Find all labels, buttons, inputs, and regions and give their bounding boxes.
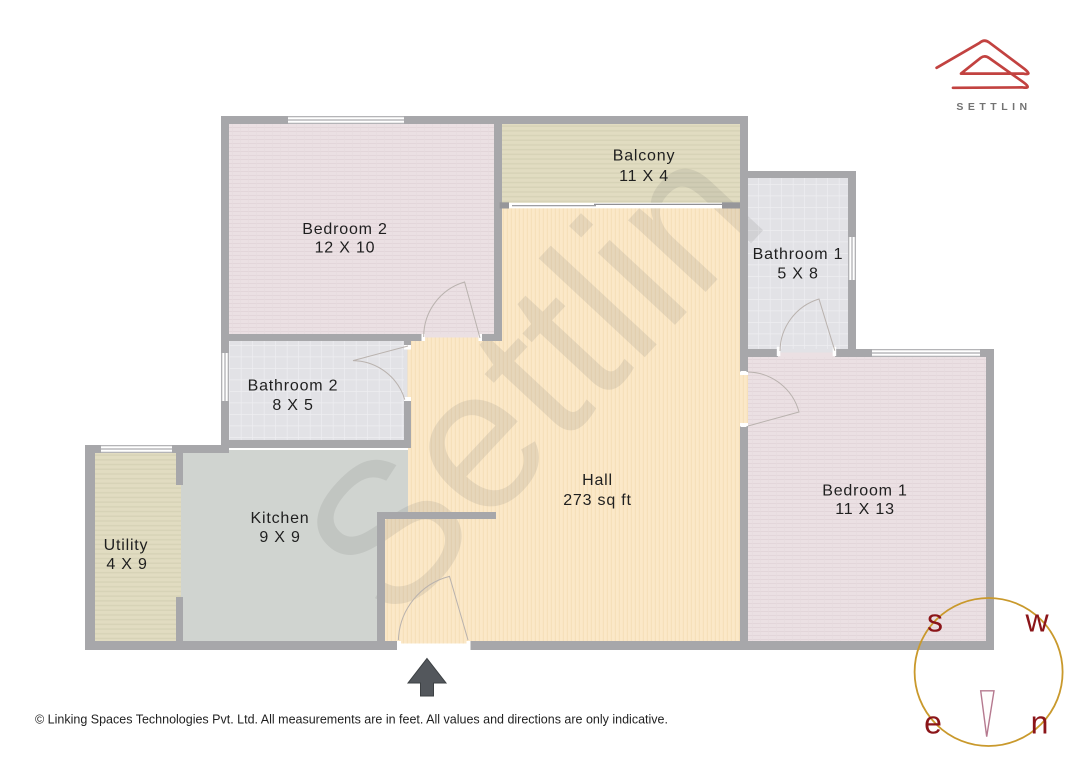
svg-text:9 X 9: 9 X 9 xyxy=(259,529,300,546)
svg-text:Balcony: Balcony xyxy=(613,148,676,165)
svg-text:n: n xyxy=(1031,705,1049,741)
svg-text:e: e xyxy=(924,705,942,741)
svg-text:4 X 9: 4 X 9 xyxy=(106,556,147,573)
svg-text:Bathroom 2: Bathroom 2 xyxy=(248,378,339,395)
svg-text:Utility: Utility xyxy=(104,537,149,554)
svg-text:SETTLIN: SETTLIN xyxy=(956,101,1031,113)
svg-text:s: s xyxy=(927,603,943,639)
svg-text:12 X 10: 12 X 10 xyxy=(315,240,376,257)
svg-text:5 X 8: 5 X 8 xyxy=(777,266,818,283)
svg-text:Bathroom 1: Bathroom 1 xyxy=(753,246,844,263)
svg-text:Bedroom 1: Bedroom 1 xyxy=(822,483,907,500)
svg-text:Bedroom 2: Bedroom 2 xyxy=(302,221,387,238)
svg-text:Hall: Hall xyxy=(582,472,613,489)
svg-text:Kitchen: Kitchen xyxy=(251,510,310,527)
svg-text:8 X 5: 8 X 5 xyxy=(272,397,313,414)
svg-text:11 X 4: 11 X 4 xyxy=(619,168,669,185)
svg-text:11 X 13: 11 X 13 xyxy=(835,501,895,518)
svg-text:© Linking Spaces Technologies: © Linking Spaces Technologies Pvt. Ltd. … xyxy=(35,713,668,727)
svg-text:w: w xyxy=(1024,603,1049,639)
svg-text:273 sq ft: 273 sq ft xyxy=(563,492,632,509)
